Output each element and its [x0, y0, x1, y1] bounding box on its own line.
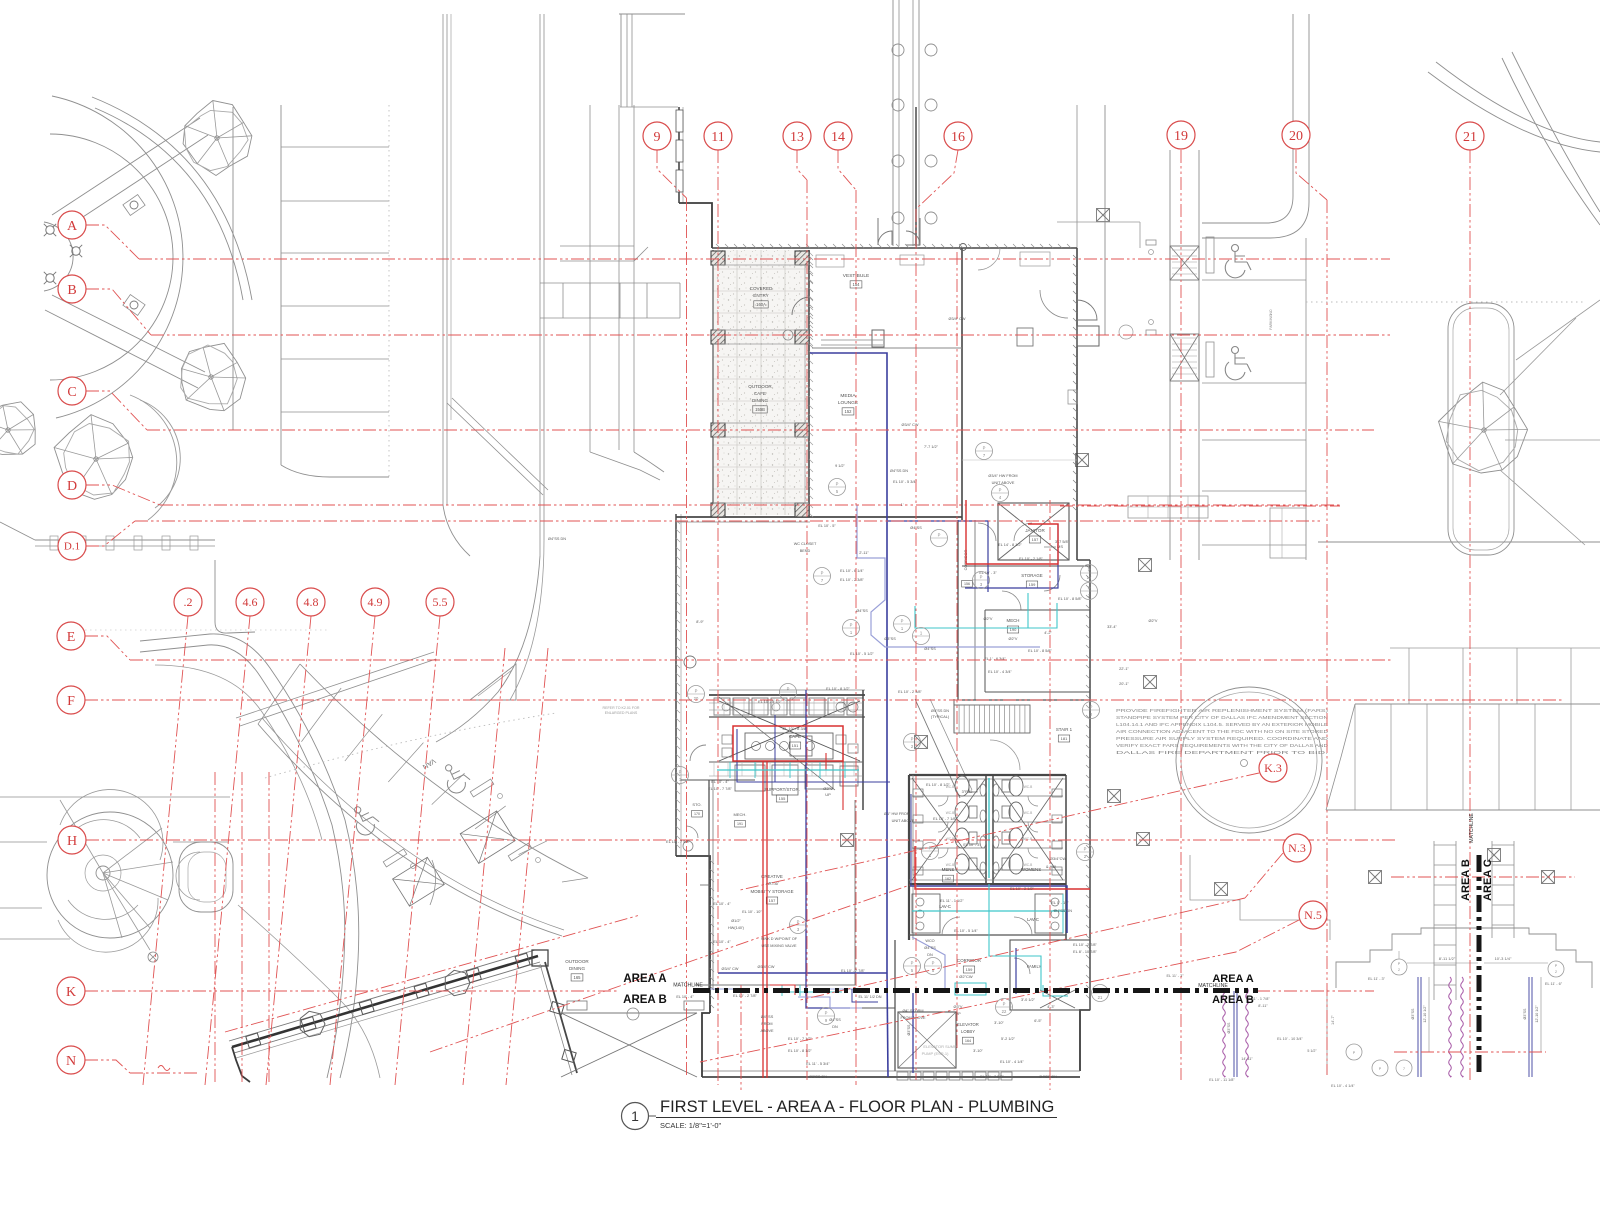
svg-text:Ø4" STORM: Ø4" STORM [902, 1009, 923, 1013]
svg-text:(TYPICAL): (TYPICAL) [931, 715, 950, 719]
svg-text:Ø1/2": Ø1/2" [731, 919, 741, 923]
svg-text:165: 165 [574, 975, 582, 980]
svg-text:PRESSURE AIR SUPPLY SYSTEM REQ: PRESSURE AIR SUPPLY SYSTEM REQUIRED. COO… [1116, 736, 1329, 741]
svg-text:16: 16 [951, 130, 965, 145]
svg-text:STANDPIPE SYSTEM PER CITY OF D: STANDPIPE SYSTEM PER CITY OF DALLAS IFC … [1116, 715, 1328, 720]
svg-text:H: H [67, 834, 77, 849]
svg-text:STORAGE: STORAGE [1021, 573, 1042, 578]
svg-text:Ø4" SS: Ø4" SS [761, 1015, 774, 1019]
svg-text:Ø4"SS: Ø4"SS [829, 1018, 841, 1022]
svg-text:C: C [67, 385, 76, 400]
svg-text:P: P [679, 770, 682, 775]
svg-text:7: 7 [1403, 1067, 1405, 1071]
svg-text:MATCHLINE: MATCHLINE [1469, 813, 1475, 843]
svg-text:P: P [787, 687, 790, 692]
svg-text:159: 159 [966, 967, 973, 972]
svg-text:EL 10' - 4 1/4": EL 10' - 4 1/4" [1000, 1060, 1024, 1064]
svg-text:OUTDOOR: OUTDOOR [565, 959, 589, 964]
svg-text:EL 0' - 10": EL 0' - 10" [1051, 901, 1069, 905]
svg-text:22'-1": 22'-1" [1119, 667, 1129, 671]
svg-text:EL 10' - 5 1/2": EL 10' - 5 1/2" [758, 700, 782, 704]
svg-text:EL 10' - 4": EL 10' - 4" [713, 940, 731, 944]
svg-text:14: 14 [831, 130, 845, 145]
svg-text:21: 21 [1098, 995, 1103, 1000]
svg-text:ABOVE: ABOVE [760, 1029, 774, 1033]
svg-text:P: P [901, 619, 904, 624]
svg-text:EL 11' 1/2 DN: EL 11' 1/2 DN [858, 995, 881, 999]
svg-text:3"FD2: 3"FD2 [962, 790, 973, 794]
svg-text:Ø4"SS DN: Ø4"SS DN [548, 537, 566, 541]
svg-text:ENTRY: ENTRY [753, 293, 769, 298]
svg-text:164: 164 [965, 1039, 971, 1043]
svg-text:3'-0 1/2": 3'-0 1/2" [1021, 998, 1036, 1002]
svg-text:E: E [67, 630, 76, 645]
svg-text:159: 159 [1029, 582, 1036, 587]
svg-text:STAIR 1: STAIR 1 [1056, 727, 1073, 732]
svg-text:BEND: BEND [800, 549, 811, 553]
svg-text:157: 157 [769, 898, 776, 903]
svg-text:P: P [1088, 586, 1091, 591]
svg-text:DINING: DINING [752, 398, 769, 403]
svg-text:EL 10' - 7 7/8": EL 10' - 7 7/8" [841, 969, 865, 973]
svg-text:SCALE: 1/8"=1'-0": SCALE: 1/8"=1'-0" [660, 1121, 722, 1130]
svg-text:HW(140'): HW(140') [728, 926, 745, 930]
svg-text:USE MIXING VALVE: USE MIXING VALVE [761, 944, 797, 948]
svg-text:P: P [1090, 705, 1093, 710]
svg-text:WC-B: WC-B [1024, 863, 1033, 867]
svg-text:9 1/2": 9 1/2" [835, 464, 845, 468]
svg-text:EL 8' - 10 7/8": EL 8' - 10 7/8" [1073, 950, 1097, 954]
svg-text:F: F [67, 694, 75, 709]
svg-text:N.5: N.5 [1304, 908, 1322, 922]
svg-text:155: 155 [779, 796, 786, 801]
svg-text:MENS: MENS [942, 867, 955, 872]
svg-text:UNIT ABOVE: UNIT ABOVE [892, 819, 915, 823]
svg-text:P: P [825, 1011, 828, 1016]
svg-text:P: P [999, 488, 1002, 493]
svg-text:P: P [983, 446, 986, 451]
svg-text:Ø3"SS: Ø3"SS [1227, 1022, 1231, 1033]
svg-text:151: 151 [792, 743, 799, 748]
svg-text:EL 10' - 4": EL 10' - 4" [713, 902, 731, 906]
svg-text:CAFE: CAFE [754, 391, 766, 396]
svg-text:VERIFY EXACT FARS REQUIREMENTS: VERIFY EXACT FARS REQUIREMENTS WITH THE … [1116, 743, 1329, 748]
svg-text:MEDIA: MEDIA [840, 393, 856, 399]
svg-text:STO.: STO. [692, 802, 701, 807]
svg-text:P: P [911, 961, 914, 966]
svg-text:7'-7 1/2": 7'-7 1/2" [924, 445, 939, 449]
svg-text:FROM: FROM [761, 1022, 772, 1026]
svg-text:4.6: 4.6 [243, 595, 258, 609]
svg-text:EL 10' - 5 1/2": EL 10' - 5 1/2" [850, 652, 874, 656]
svg-text:AREA A: AREA A [623, 973, 666, 985]
svg-text:20: 20 [1289, 129, 1303, 144]
svg-text:19: 19 [1174, 129, 1188, 144]
svg-text:MECH.: MECH. [734, 812, 747, 817]
svg-text:20'-1": 20'-1" [1119, 682, 1129, 686]
svg-text:Ø4"SS DN: Ø4"SS DN [931, 709, 949, 713]
svg-text:DN: DN [927, 953, 933, 957]
svg-text:P: P [938, 533, 941, 538]
svg-text:UNIT ABOVE: UNIT ABOVE [992, 481, 1015, 485]
svg-text:157: 157 [1032, 537, 1039, 542]
svg-text:ENLARGED PLANS: ENLARGED PLANS [605, 711, 638, 715]
svg-text:EL 10' - 8 1/2": EL 10' - 8 1/2" [826, 687, 850, 691]
svg-text:181: 181 [1061, 736, 1068, 741]
svg-text:4.8: 4.8 [304, 595, 319, 609]
svg-text:2: 2 [1398, 968, 1400, 972]
svg-text:Ø3"SS: Ø3"SS [884, 637, 896, 641]
svg-text:AREA B: AREA B [623, 994, 667, 1006]
svg-text:13: 13 [790, 130, 804, 145]
svg-text:SUPPORT/STOR.: SUPPORT/STOR. [764, 787, 800, 792]
svg-text:EL 10' - 2 1/2": EL 10' - 2 1/2" [1010, 887, 1034, 891]
svg-text:191: 191 [737, 822, 743, 826]
svg-text:& HW: & HW [1046, 865, 1056, 869]
svg-text:WC-B: WC-B [1024, 785, 1033, 789]
svg-text:EL 14' - 8 1/2": EL 14' - 8 1/2" [998, 543, 1022, 547]
svg-text:AREA C: AREA C [1482, 859, 1494, 901]
svg-text:12'-10 1/2": 12'-10 1/2" [1535, 1005, 1539, 1023]
svg-text:3'-10": 3'-10" [994, 1021, 1004, 1025]
svg-text:EL 10' - 10": EL 10' - 10" [742, 910, 762, 914]
svg-text:P: P [836, 482, 839, 487]
svg-text:B: B [67, 283, 76, 298]
svg-text:EL 10' - 5": EL 10' - 5" [818, 524, 836, 528]
svg-text:Ø4"SS: Ø4"SS [856, 609, 868, 613]
svg-text:N.3: N.3 [1288, 841, 1306, 855]
svg-text:UP: UP [955, 1012, 961, 1016]
svg-text:Ø3"SS DN: Ø3"SS DN [809, 1075, 827, 1079]
svg-text:P: P [850, 623, 853, 628]
svg-text:Ø4"SS: Ø4"SS [924, 647, 936, 651]
svg-text:WC CLOSET: WC CLOSET [794, 542, 817, 546]
svg-text:COVERED: COVERED [750, 286, 773, 291]
svg-text:AIR CONNECTION ADJACENT TO THE: AIR CONNECTION ADJACENT TO THE FDC WITH … [1116, 729, 1329, 734]
svg-text:Ø2"V: Ø2"V [1149, 619, 1158, 623]
svg-text:JANITOR: JANITOR [1025, 528, 1045, 533]
svg-text:8'-11": 8'-11" [1258, 1004, 1268, 1008]
svg-text:2'-11": 2'-11" [859, 551, 869, 555]
svg-text:2: 2 [1555, 970, 1557, 974]
svg-text:EL 10' - 7 7/8": EL 10' - 7 7/8" [708, 787, 732, 791]
svg-text:EL 11' - 5 3/4": EL 11' - 5 3/4" [806, 1062, 830, 1066]
svg-text:MATCHLINE: MATCHLINE [1198, 983, 1228, 989]
svg-text:Ø2"CW: Ø2"CW [959, 974, 973, 979]
svg-text:21: 21 [1463, 130, 1477, 145]
svg-text:WC-B: WC-B [1024, 811, 1033, 815]
svg-text:WOMENS: WOMENS [1021, 867, 1041, 872]
svg-text:EL 10' - 8 1/2": EL 10' - 8 1/2" [926, 783, 950, 787]
svg-text:WCO: WCO [925, 939, 934, 943]
svg-text:3'-7 5/8": 3'-7 5/8" [1055, 540, 1070, 544]
svg-text:Ø3"V: Ø3"V [823, 786, 833, 791]
svg-text:14'-11": 14'-11" [1241, 1057, 1253, 1061]
svg-text:Ø4"SS DN: Ø4"SS DN [1054, 909, 1072, 913]
svg-text:Ø4"SS DN: Ø4"SS DN [1039, 1075, 1057, 1079]
svg-text:Ø4"SS: Ø4"SS [924, 946, 936, 950]
svg-text:EL 10' - 4": EL 10' - 4" [711, 780, 729, 784]
svg-text:5'-2 1/2": 5'-2 1/2" [1001, 1037, 1016, 1041]
svg-text:ELEVATOR: ELEVATOR [957, 1022, 979, 1027]
svg-text:EL 10' - 7 1/8": EL 10' - 7 1/8" [933, 817, 957, 821]
svg-text:OUTDOOR: OUTDOOR [748, 384, 772, 389]
svg-text:EL 10' - 8 1/2": EL 10' - 8 1/2" [788, 1049, 812, 1053]
svg-text:162: 162 [945, 877, 951, 881]
svg-text:DN: DN [832, 1025, 838, 1029]
svg-text:Ø3/4" CW: Ø3/4" CW [758, 965, 775, 969]
svg-text:EL 10' - 7 1/2": EL 10' - 7 1/2" [788, 1037, 812, 1041]
svg-text:152: 152 [845, 409, 853, 414]
svg-text:8'-9": 8'-9" [696, 620, 704, 624]
svg-text:EL 10' - 6 1/4": EL 10' - 6 1/4" [840, 569, 864, 573]
svg-text:LOBBY: LOBBY [961, 1029, 975, 1034]
svg-text:WC-B: WC-B [946, 863, 955, 867]
svg-text:P: P [929, 846, 932, 851]
svg-text:22: 22 [1002, 1009, 1007, 1014]
svg-text:EL 10' - 8 5/8": EL 10' - 8 5/8" [1028, 649, 1052, 653]
svg-text:FIRST LEVEL - AREA A - FLOOR P: FIRST LEVEL - AREA A - FLOOR PLAN - PLUM… [660, 1098, 1054, 1116]
svg-text:5 1/2": 5 1/2" [1307, 1049, 1317, 1053]
svg-text:Ø4"SS DN: Ø4"SS DN [890, 469, 908, 473]
svg-text:MOBILITY STORAGE: MOBILITY STORAGE [750, 889, 793, 894]
svg-text:ELEVATOR SUMP: ELEVATOR SUMP [923, 1044, 957, 1049]
svg-text:EL 10' - 2 1/8": EL 10' - 2 1/8" [1019, 557, 1043, 561]
svg-text:EL 10' - 2 7/8": EL 10' - 2 7/8" [1073, 943, 1097, 947]
svg-text:EL 10' - 8 5/8": EL 10' - 8 5/8" [1058, 597, 1082, 601]
svg-text:12'-10 1/2": 12'-10 1/2" [1423, 1005, 1427, 1023]
svg-text:SINK D W/POINT OF: SINK D W/POINT OF [761, 937, 798, 941]
svg-text:EL 10' - 4 3/4": EL 10' - 4 3/4" [988, 670, 1012, 674]
svg-text:6'-5": 6'-5" [1034, 1019, 1042, 1023]
svg-text:PROVIDE FIREFIGHTER AIR REPLEN: PROVIDE FIREFIGHTER AIR REPLENISHMENT SY… [1116, 708, 1329, 713]
svg-text:D: D [67, 479, 77, 494]
svg-text:LOUNGE: LOUNGE [838, 400, 858, 406]
svg-text:Ø3"SS: Ø3"SS [1411, 1008, 1415, 1019]
svg-text:160A: 160A [756, 302, 766, 307]
svg-text:MECH: MECH [1007, 618, 1020, 623]
svg-text:10'-3 1/4": 10'-3 1/4" [1495, 956, 1512, 961]
svg-text:EL 10' - 2 3/8": EL 10' - 2 3/8" [898, 690, 922, 694]
svg-text:LAV-C: LAV-C [939, 904, 951, 909]
svg-text:DALLAS FIRE DEPARTMENT PRIOR T: DALLAS FIRE DEPARTMENT PRIOR TO BID. [1116, 750, 1328, 755]
svg-text:P: P [980, 575, 983, 580]
svg-text:EL 10' - 4 1/4": EL 10' - 4 1/4" [1331, 1084, 1355, 1088]
svg-text:EL 11' - 1 1/2": EL 11' - 1 1/2" [940, 899, 964, 903]
svg-text:EL 10' - 4": EL 10' - 4" [676, 995, 694, 999]
svg-text:PARKING: PARKING [1269, 314, 1273, 330]
svg-text:LAV-C: LAV-C [1027, 917, 1039, 922]
svg-text:P: P [911, 737, 914, 742]
svg-text:P: P [1088, 568, 1091, 573]
svg-text:EL 10' - 3": EL 10' - 3" [963, 843, 981, 847]
svg-text:33'-4": 33'-4" [1107, 625, 1117, 629]
svg-text:17: 17 [1087, 575, 1092, 580]
svg-text:156: 156 [964, 582, 970, 586]
svg-text:D.1: D.1 [64, 541, 80, 553]
svg-text:5.5: 5.5 [433, 595, 448, 609]
svg-text:PUMP (ESP-1): PUMP (ESP-1) [922, 1051, 949, 1056]
svg-text:EL 10' - 11 1/8": EL 10' - 11 1/8" [1209, 1078, 1235, 1082]
svg-text:P: P [932, 961, 935, 966]
svg-text:4'-3": 4'-3" [1047, 1005, 1055, 1009]
svg-text:Ø3/4" CW: Ø3/4" CW [722, 967, 739, 971]
svg-text:DINING: DINING [569, 966, 586, 971]
svg-text:Ø2"V: Ø2"V [1009, 637, 1018, 641]
svg-text:EL 10' - 5 3/4": EL 10' - 5 3/4" [893, 480, 917, 484]
svg-text:170: 170 [694, 812, 700, 816]
svg-text:Ø3"SS: Ø3"SS [1523, 1008, 1527, 1019]
svg-text:1: 1 [631, 1108, 639, 1124]
svg-text:P: P [695, 689, 698, 694]
svg-text:EL 11' - 3": EL 11' - 3" [1368, 977, 1386, 981]
svg-text:K: K [66, 985, 76, 1000]
svg-text:CREATIVE: CREATIVE [761, 874, 783, 879]
svg-text:Ø1" HW FROM: Ø1" HW FROM [884, 812, 910, 816]
svg-text:MATCHLINE: MATCHLINE [673, 983, 703, 989]
svg-text:CORRIDOR: CORRIDOR [957, 958, 981, 963]
svg-text:9: 9 [654, 130, 661, 145]
svg-text:AREA B: AREA B [1460, 859, 1472, 901]
svg-text:NO: NO [1269, 309, 1273, 315]
svg-text:REFER TO K2.01 FOR: REFER TO K2.01 FOR [602, 706, 639, 710]
svg-text:N: N [66, 1054, 76, 1069]
svg-text:11: 11 [711, 130, 724, 145]
svg-text:WC-B: WC-B [946, 811, 955, 815]
svg-text:8'-11 1/2": 8'-11 1/2" [1439, 956, 1456, 961]
svg-text:AREA B: AREA B [1212, 994, 1254, 1006]
svg-text:EL 10' - 7 5/8": EL 10' - 7 5/8" [980, 1075, 1004, 1079]
svg-text:A: A [67, 219, 78, 234]
svg-text:4'-2": 4'-2" [1044, 631, 1052, 635]
svg-text:EL 11' - 3": EL 11' - 3" [1166, 974, 1184, 978]
svg-text:P: P [1084, 847, 1087, 852]
svg-text:Ø3"SS: Ø3"SS [907, 1024, 911, 1035]
svg-text:EL 10' - 2 3/8": EL 10' - 2 3/8" [840, 578, 864, 582]
svg-text:14'-7": 14'-7" [1331, 1015, 1335, 1025]
svg-text:EL 10' - 5 1/4": EL 10' - 5 1/4" [954, 929, 978, 933]
svg-text:150B: 150B [755, 407, 765, 412]
svg-text:P: P [821, 571, 824, 576]
svg-text:EL 10' - 2 7/8": EL 10' - 2 7/8" [733, 994, 757, 998]
svg-text:3'-10": 3'-10" [973, 1049, 983, 1053]
svg-text:K.3: K.3 [1264, 761, 1282, 775]
svg-text:EL 11' - 6": EL 11' - 6" [1545, 982, 1563, 986]
svg-text:EL 10' - 10 3/4": EL 10' - 10 3/4" [1277, 1037, 1303, 1041]
svg-text:UP: UP [825, 792, 831, 797]
svg-text:L104.14.1 AND IFC APPENDIX L10: L104.14.1 AND IFC APPENDIX L104.5. SERVE… [1116, 722, 1328, 727]
svg-text:CAFE: CAFE [789, 734, 801, 739]
svg-text:.2: .2 [184, 595, 193, 609]
svg-text:Ø3/4"CW: Ø3/4"CW [1050, 857, 1066, 861]
svg-text:P: P [1003, 1002, 1006, 1007]
svg-text:4.9: 4.9 [368, 595, 383, 609]
svg-text:Ø2"V: Ø2"V [984, 617, 993, 621]
svg-text:Ø3/4" HW FROM: Ø3/4" HW FROM [988, 474, 1017, 478]
